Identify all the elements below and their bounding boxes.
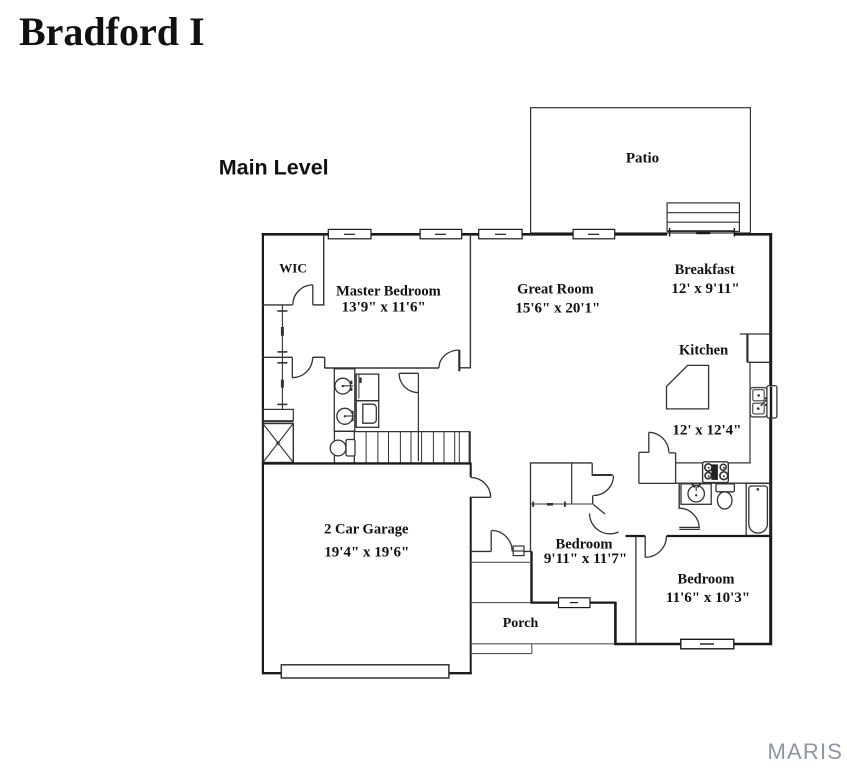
svg-text:12' x 12'4": 12' x 12'4" [672,423,741,439]
svg-text:12' x 9'11": 12' x 9'11" [671,281,739,297]
svg-text:13'9" x 11'6": 13'9" x 11'6" [342,300,426,316]
svg-text:Kitchen: Kitchen [679,343,728,359]
svg-text:11'6" x 10'3": 11'6" x 10'3" [666,590,750,606]
svg-text:Main Level: Main Level [219,156,329,180]
svg-text:Breakfast: Breakfast [675,262,735,278]
svg-text:MARIS: MARIS [768,739,844,764]
svg-text:Porch: Porch [503,616,539,631]
svg-text:Patio: Patio [626,151,659,167]
svg-text:Bradford I: Bradford I [19,9,205,54]
svg-text:Great Room: Great Room [517,282,594,298]
svg-text:2 Car Garage: 2 Car Garage [324,522,409,538]
svg-text:Master Bedroom: Master Bedroom [336,284,441,300]
svg-text:19'4" x 19'6": 19'4" x 19'6" [324,545,409,561]
svg-text:WIC: WIC [279,261,306,276]
svg-text:Bedroom: Bedroom [678,572,735,588]
svg-text:9'11" x 11'7": 9'11" x 11'7" [544,551,627,567]
svg-text:15'6" x 20'1": 15'6" x 20'1" [515,301,600,317]
